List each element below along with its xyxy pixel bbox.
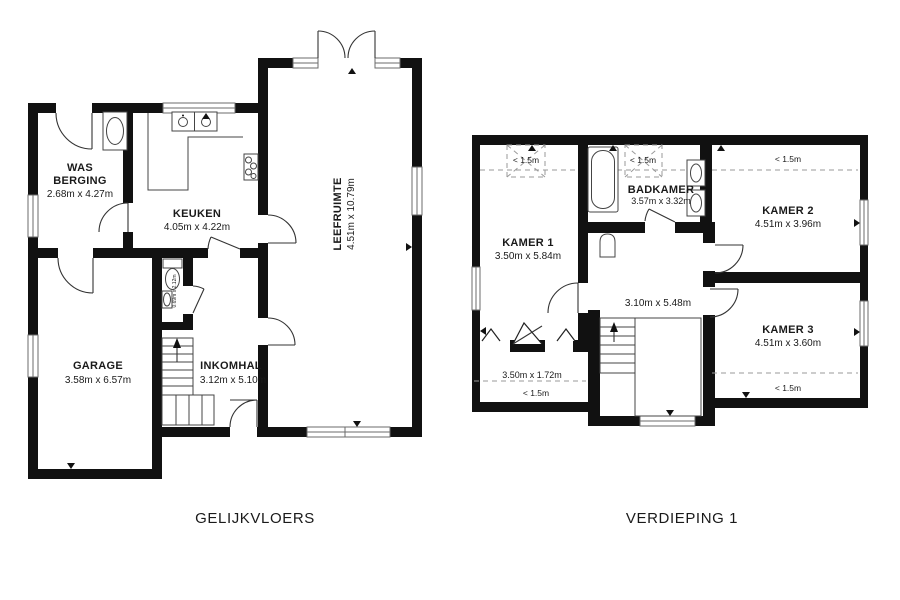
window — [28, 195, 38, 237]
height-note-velux2: < 1.5m — [630, 155, 656, 165]
room-label-kamer2: KAMER 2 — [762, 205, 814, 217]
door-keuken-inkomhal — [208, 237, 240, 249]
room-dims-kamer3: 4.51m x 3.60m — [755, 338, 821, 349]
room-dims-berging: 3.50m x 1.72m — [502, 370, 562, 380]
room-dims-badkamer: 3.57m x 3.32m — [631, 196, 691, 206]
room-dims-was-berging: 2.68m x 4.27m — [47, 189, 113, 200]
room-dims-kamer2: 4.51m x 3.96m — [755, 219, 821, 230]
room-dims-garage: 3.58m x 6.57m — [65, 375, 131, 386]
room-label-inkomhal: INKOMHAL — [200, 360, 262, 372]
room-label-kamer1: KAMER 1 — [502, 237, 554, 249]
bathtub-icon — [588, 147, 618, 212]
window — [860, 200, 868, 245]
first-floor-plan: KAMER 1 3.50m x 5.84m BADKAMER 3.57m x 3… — [472, 135, 868, 527]
stairwell-void — [635, 318, 701, 416]
room-dims-inkomhal: 3.12m x 5.10m — [200, 375, 266, 386]
room-label-keuken: KEUKEN — [173, 208, 221, 220]
washing-machine-icon — [103, 112, 127, 150]
door-kamer2 — [715, 245, 743, 273]
room-label-badkamer: BADKAMER — [628, 184, 695, 196]
door-wc — [193, 286, 204, 313]
room-dims-kamer1: 3.50m x 5.84m — [495, 251, 561, 262]
door-keuken-wasberging — [99, 203, 128, 232]
room-label-was-berging: WAS — [67, 162, 93, 174]
stove-icon — [244, 154, 258, 180]
window — [375, 58, 400, 68]
window — [28, 335, 38, 377]
room-label-garage: GARAGE — [73, 360, 123, 372]
wc-sink-icon — [162, 291, 172, 308]
height-note-velux1: < 1.5m — [513, 155, 539, 165]
room-dims-overloop: 3.10m x 5.48m — [625, 298, 691, 309]
first-floor-stairs — [600, 318, 701, 416]
door-garage — [58, 258, 93, 293]
door-keuken-leefruimte — [268, 215, 296, 243]
height-note-berging: < 1.5m — [523, 388, 549, 398]
room-label-kamer3: KAMER 3 — [762, 324, 814, 336]
room-label-was-berging-2: BERGING — [53, 175, 106, 187]
door-badkamer — [645, 209, 675, 222]
door-french-doors — [318, 31, 375, 58]
window — [307, 427, 390, 437]
first-floor-walls — [472, 135, 868, 426]
door-kamer1 — [548, 283, 578, 313]
door-kamer3 — [710, 289, 738, 317]
ground-floor-title: GELIJKVLOERS — [195, 510, 315, 527]
kitchen-sink-icon — [172, 112, 217, 131]
door-front-entry — [230, 400, 257, 427]
room-dims-wc: 0.69m x 2.12m — [172, 274, 178, 307]
room-label-leefruimte: LEEFRUIMTE — [332, 177, 344, 250]
toilet-icon — [687, 160, 705, 186]
window — [412, 167, 422, 215]
floorplan-page: WAS BERGING 2.68m x 4.27m KEUKEN 4.05m x… — [0, 0, 900, 600]
hall-sink-icon — [600, 234, 615, 257]
first-floor-title: VERDIEPING 1 — [626, 510, 738, 527]
window — [293, 58, 318, 68]
window — [640, 416, 695, 426]
height-note-kamer3: < 1.5m — [775, 383, 801, 393]
door-was-berging-entry — [56, 113, 92, 149]
height-note-kamer2: < 1.5m — [775, 154, 801, 164]
window — [860, 301, 868, 346]
room-dims-keuken: 4.05m x 4.22m — [164, 222, 230, 233]
door-inkomhal-leefruimte — [268, 318, 295, 345]
room-dims-leefruimte: 4.51m x 10.79m — [346, 178, 357, 250]
ground-floor-walls — [28, 58, 422, 479]
floorplan-canvas: WAS BERGING 2.68m x 4.27m KEUKEN 4.05m x… — [0, 0, 900, 600]
ground-floor-plan: WAS BERGING 2.68m x 4.27m KEUKEN 4.05m x… — [28, 31, 422, 527]
knee-wall-hatches — [482, 323, 575, 344]
stairs-up-arrow — [173, 338, 181, 348]
window — [472, 267, 480, 310]
